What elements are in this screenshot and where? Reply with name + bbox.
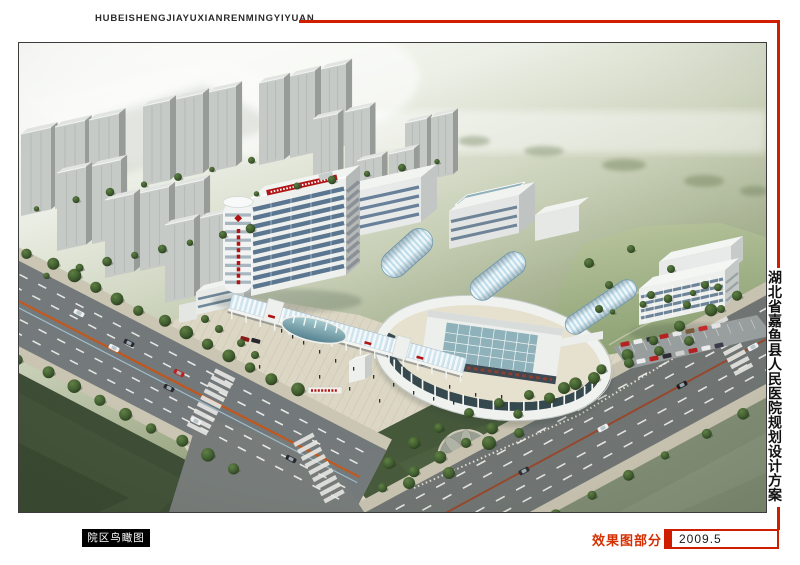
aerial-rendering [19, 43, 766, 512]
date-box: 2009.5 [664, 529, 779, 549]
vertical-project-title: 湖北省嘉鱼县人民医院规划设计方案 [765, 270, 785, 512]
rendering-frame [18, 42, 767, 513]
view-label: 院区鸟瞰图 [82, 529, 150, 547]
pinyin-title: HUBEISHENGJIAYUXIANRENMINGYIYUAN [95, 13, 315, 24]
top-red-rule [299, 20, 780, 23]
section-label: 效果图部分 [588, 530, 662, 549]
presentation-board: HUBEISHENGJIAYUXIANRENMINGYIYUAN 湖北省嘉鱼县人… [0, 0, 800, 565]
date-label: 2009.5 [672, 532, 722, 546]
side-red-rule-top [777, 20, 780, 268]
vignette [19, 43, 766, 512]
